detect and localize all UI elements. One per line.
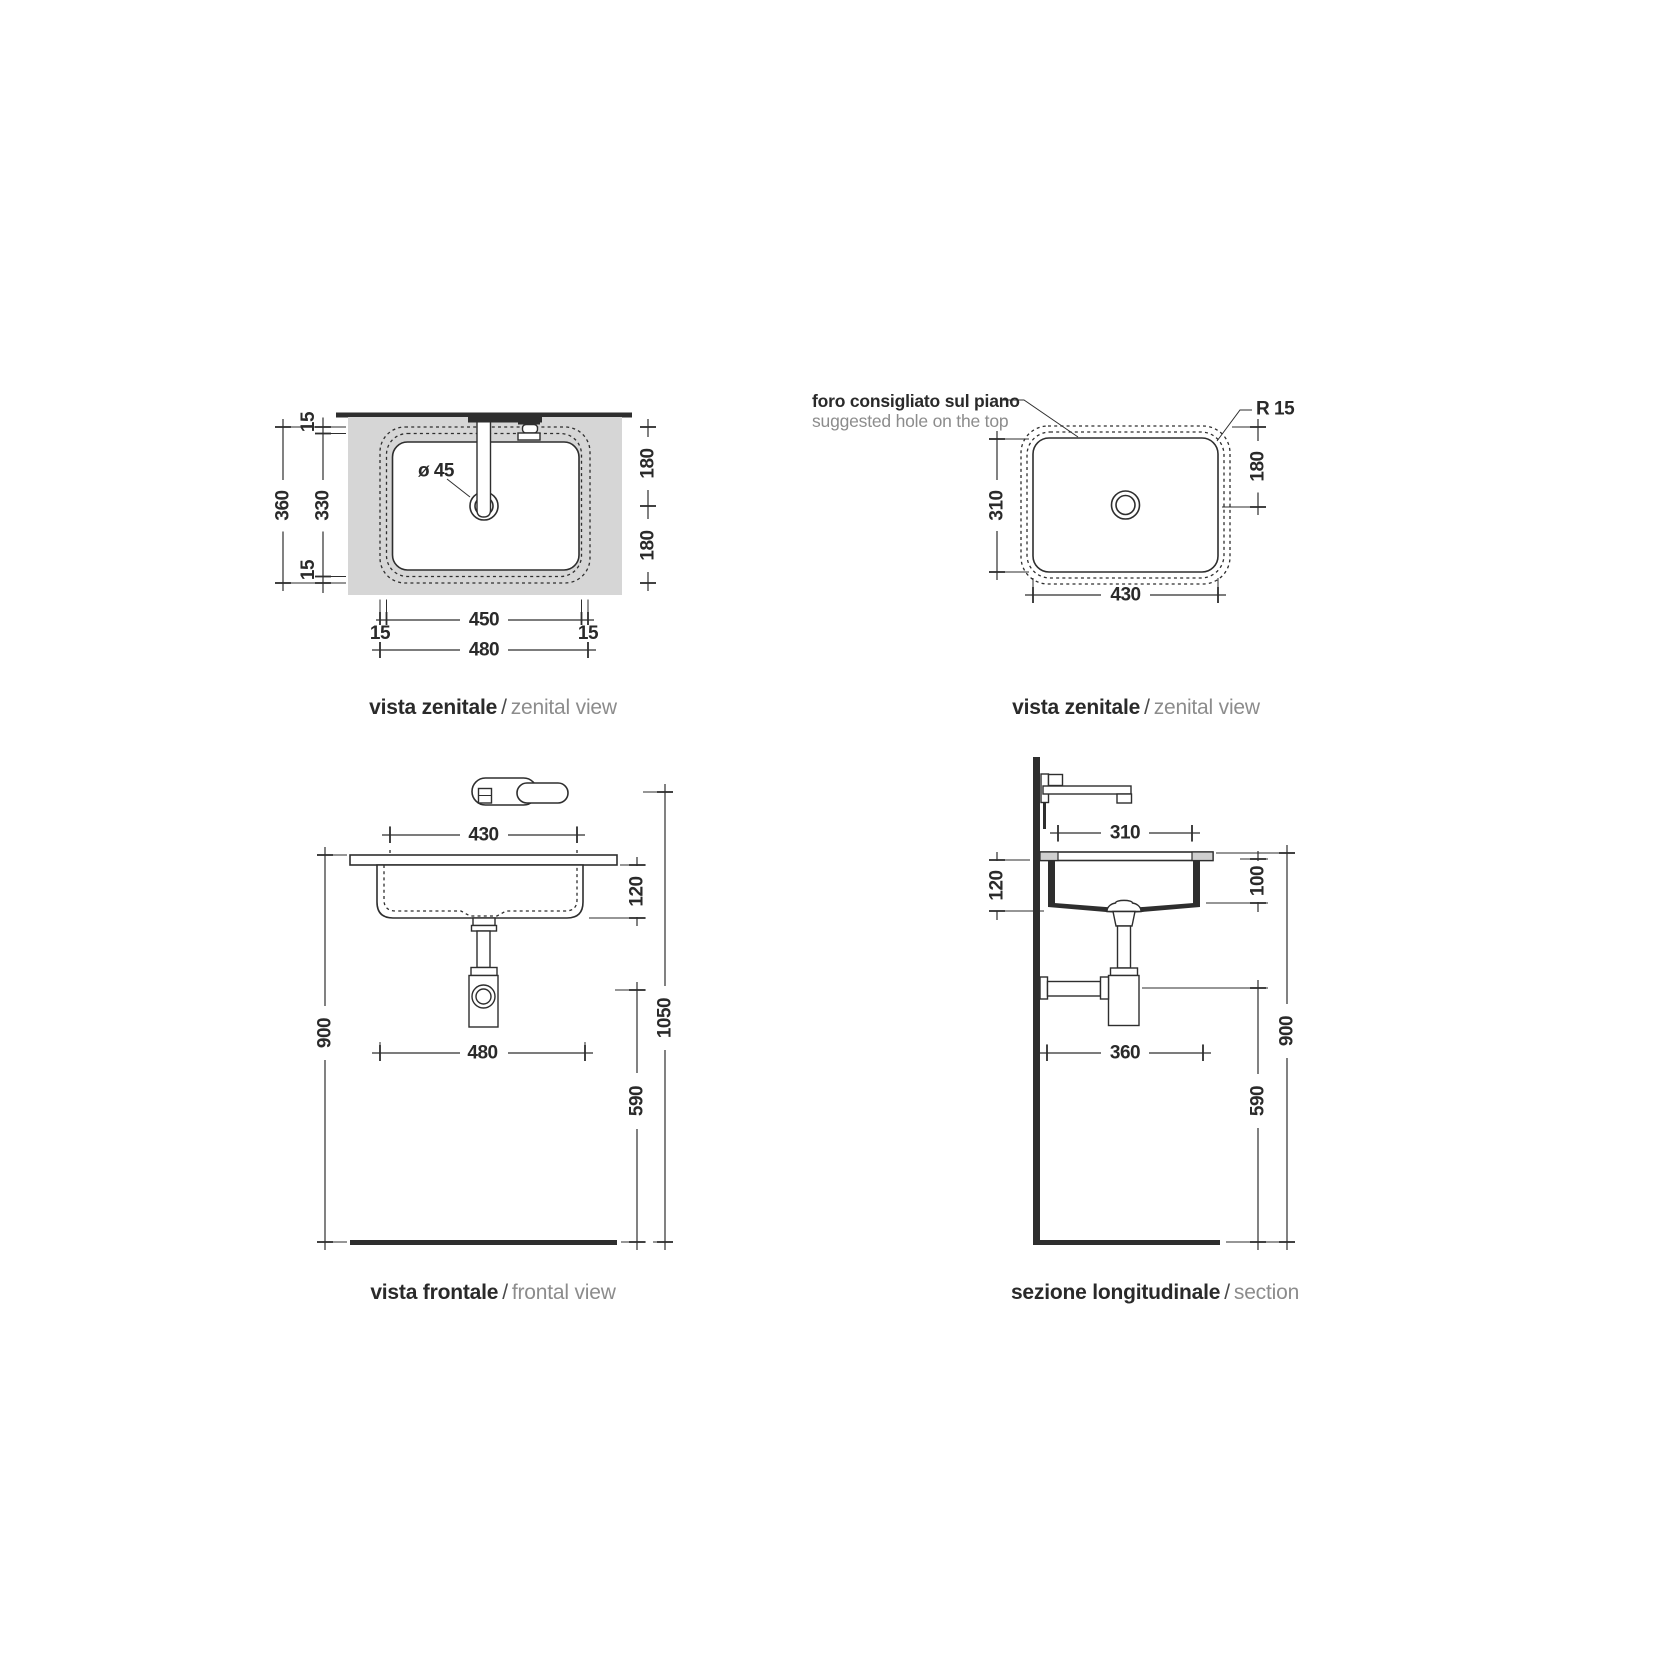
svg-text:1050: 1050 xyxy=(655,998,676,1038)
svg-text:310: 310 xyxy=(1110,823,1140,844)
dim-basin-depth: 310 xyxy=(987,431,1030,580)
caption-secondary: frontal view xyxy=(512,1281,616,1304)
faucet-section xyxy=(1041,774,1132,829)
svg-text:590: 590 xyxy=(627,1086,648,1116)
svg-text:15: 15 xyxy=(298,411,319,432)
drain-assembly-front xyxy=(469,918,498,1027)
dim-drain-height: 590 xyxy=(615,982,648,1250)
dim-counter-height: 900 xyxy=(1216,845,1298,1250)
floor-line xyxy=(350,1240,617,1245)
caption-separator: / xyxy=(502,1281,508,1304)
faucet-front xyxy=(472,778,568,805)
dim-overall-width: 480 xyxy=(372,640,596,661)
basin-body xyxy=(377,865,583,918)
floor-line xyxy=(1033,1240,1220,1245)
caption-primary: sezione longitudinale xyxy=(1011,1281,1220,1304)
caption-separator: / xyxy=(1144,696,1150,719)
note-secondary: suggested hole on the top xyxy=(812,411,1020,431)
dim-overall-depth: 360 xyxy=(273,419,294,591)
dim-basin-height: 120 xyxy=(589,857,648,926)
waste-pipe-section xyxy=(1040,977,1109,999)
svg-text:900: 900 xyxy=(315,1018,336,1048)
caption-secondary: zenital view xyxy=(1154,696,1260,719)
svg-text:480: 480 xyxy=(467,1043,497,1064)
dim-drain-height: 590 xyxy=(1142,980,1269,1250)
dim-drain-offsets-right: 180 180 xyxy=(638,419,659,591)
svg-text:360: 360 xyxy=(1110,1043,1140,1064)
wall-line xyxy=(1033,757,1040,1245)
caption-separator: / xyxy=(1224,1281,1230,1304)
svg-text:120: 120 xyxy=(627,876,648,906)
caption-primary: vista zenitale xyxy=(369,696,497,719)
svg-text:100: 100 xyxy=(1248,866,1269,896)
counter-slab-section xyxy=(1040,852,1213,861)
svg-text:330: 330 xyxy=(313,490,334,520)
caption-section: sezione longitudinale/section xyxy=(975,1281,1335,1305)
svg-text:480: 480 xyxy=(469,640,499,661)
svg-text:15: 15 xyxy=(370,623,391,644)
technical-drawing-canvas: ø 45 360 330 15 15 180 180 450 xyxy=(0,0,1676,1676)
note-primary: foro consigliato sul piano xyxy=(812,391,1020,411)
svg-text:360: 360 xyxy=(273,490,294,520)
svg-text:120: 120 xyxy=(987,870,1008,900)
caption-primary: vista zenitale xyxy=(1012,696,1140,719)
caption-primary: vista frontale xyxy=(370,1281,498,1304)
dim-counter-height: 900 xyxy=(315,847,348,1250)
caption-secondary: zenital view xyxy=(511,696,617,719)
dim-faucet-height: 1050 xyxy=(643,784,676,1250)
caption-frontal: vista frontale/frontal view xyxy=(313,1281,673,1305)
faucet-spout-top xyxy=(477,421,491,517)
caption-zenital-left: vista zenitale/zenital view xyxy=(313,696,673,720)
wall-edge-bar xyxy=(336,413,632,418)
svg-text:15: 15 xyxy=(578,623,599,644)
svg-text:15: 15 xyxy=(298,559,319,580)
suggested-hole-note: foro consigliato sul piano suggested hol… xyxy=(812,391,1020,431)
svg-text:900: 900 xyxy=(1277,1016,1298,1046)
section-view: 310 120 100 900 590 xyxy=(987,757,1298,1250)
svg-text:430: 430 xyxy=(1110,585,1140,606)
drain-assembly-section xyxy=(1107,900,1141,1025)
dim-overall-depth: 360 xyxy=(1039,1043,1211,1064)
svg-text:310: 310 xyxy=(987,490,1008,520)
svg-text:R 15: R 15 xyxy=(1256,399,1295,420)
svg-text:180: 180 xyxy=(638,530,659,560)
dim-hole-depth: 310 xyxy=(1050,823,1200,844)
svg-text:180: 180 xyxy=(1248,451,1269,481)
dim-corner-radius: R 15 xyxy=(1217,399,1295,442)
dim-drain-offset: 180 xyxy=(1222,419,1269,515)
zenital-view-right: R 15 310 180 430 xyxy=(987,399,1296,606)
dim-label-drain-diameter: ø 45 xyxy=(418,461,455,482)
caption-secondary: section xyxy=(1234,1281,1299,1304)
svg-text:180: 180 xyxy=(638,448,659,478)
svg-text:430: 430 xyxy=(468,825,498,846)
counter-slab xyxy=(350,855,617,865)
svg-text:450: 450 xyxy=(469,610,499,631)
svg-text:590: 590 xyxy=(1248,1086,1269,1116)
dim-overall-width: 480 xyxy=(372,1042,593,1064)
caption-separator: / xyxy=(501,696,507,719)
dim-basin-width: 430 xyxy=(1025,578,1226,606)
drain-top-view xyxy=(1112,491,1140,519)
caption-zenital-right: vista zenitale/zenital view xyxy=(956,696,1316,720)
zenital-view-left: ø 45 360 330 15 15 180 180 450 xyxy=(273,411,659,660)
dim-inner-depth: 100 xyxy=(1206,851,1269,912)
frontal-view: 430 900 120 xyxy=(315,778,676,1250)
